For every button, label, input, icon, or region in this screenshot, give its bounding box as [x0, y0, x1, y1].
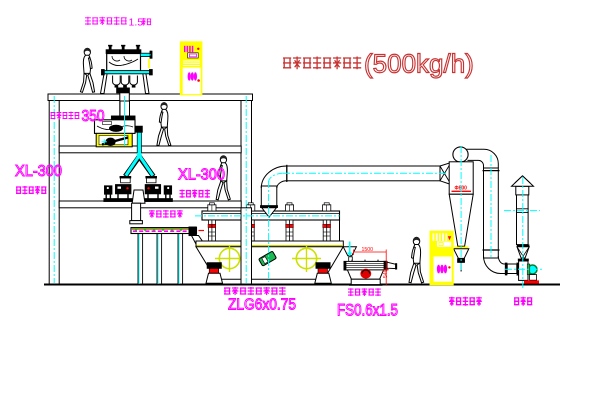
svg-text:540: 540	[383, 269, 389, 278]
svg-text:(500kg/h): (500kg/h)	[364, 49, 474, 79]
svg-text:350: 350	[82, 108, 105, 125]
svg-text:FS0.6x1.5: FS0.6x1.5	[337, 302, 398, 320]
svg-text:XL-300: XL-300	[178, 167, 225, 184]
svg-text:XL-300: XL-300	[15, 163, 62, 180]
svg-text:1500: 1500	[362, 247, 374, 253]
svg-text:ZLG6x0.75: ZLG6x0.75	[228, 297, 296, 314]
svg-text:1.5: 1.5	[129, 17, 144, 29]
